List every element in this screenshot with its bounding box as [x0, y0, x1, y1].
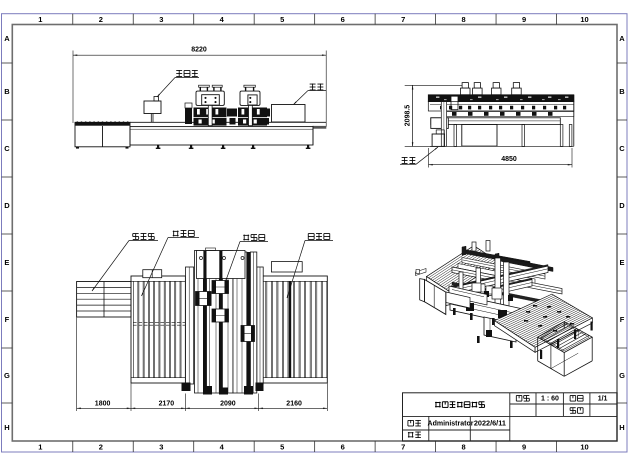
svg-text:6: 6 — [341, 443, 345, 452]
svg-text:A: A — [4, 34, 10, 43]
svg-text:8: 8 — [462, 443, 466, 452]
svg-text:2022/6/11: 2022/6/11 — [474, 418, 506, 427]
svg-text:1 : 60: 1 : 60 — [541, 396, 559, 403]
svg-text:C: C — [4, 144, 10, 153]
svg-text:4850: 4850 — [501, 156, 517, 163]
svg-text:3: 3 — [159, 15, 163, 24]
svg-text:9: 9 — [522, 443, 526, 452]
svg-text:E: E — [619, 258, 624, 267]
svg-text:1800: 1800 — [95, 401, 111, 408]
svg-text:9: 9 — [522, 15, 526, 24]
svg-text:8220: 8220 — [191, 47, 207, 54]
svg-text:5: 5 — [280, 15, 284, 24]
svg-text:1/1: 1/1 — [598, 396, 608, 403]
svg-text:2: 2 — [99, 15, 103, 24]
svg-text:G: G — [4, 371, 10, 380]
svg-text:7: 7 — [401, 15, 405, 24]
svg-text:8: 8 — [462, 15, 466, 24]
svg-text:F: F — [620, 315, 625, 324]
svg-text:1: 1 — [38, 443, 42, 452]
svg-text:A: A — [619, 34, 625, 43]
svg-text:2170: 2170 — [159, 401, 175, 408]
svg-text:2098.5: 2098.5 — [405, 105, 412, 127]
svg-text:1: 1 — [38, 15, 42, 24]
svg-text:C: C — [619, 144, 625, 153]
svg-text:6: 6 — [341, 15, 345, 24]
svg-text:3: 3 — [159, 443, 163, 452]
svg-text:D: D — [619, 201, 625, 210]
svg-text:Administrator: Administrator — [428, 421, 474, 428]
svg-text:7: 7 — [401, 443, 405, 452]
svg-text:2160: 2160 — [286, 401, 302, 408]
svg-text:F: F — [5, 315, 10, 324]
svg-text:H: H — [619, 423, 624, 432]
svg-text:B: B — [4, 87, 10, 96]
svg-text:B: B — [619, 87, 625, 96]
svg-text:2090: 2090 — [220, 401, 236, 408]
svg-text:D: D — [4, 201, 10, 210]
svg-text:E: E — [4, 258, 9, 267]
svg-text:5: 5 — [280, 443, 284, 452]
svg-text:10: 10 — [580, 443, 588, 452]
svg-text:10: 10 — [580, 15, 588, 24]
svg-text:2: 2 — [99, 443, 103, 452]
svg-text:H: H — [4, 423, 9, 432]
svg-text:G: G — [619, 371, 625, 380]
